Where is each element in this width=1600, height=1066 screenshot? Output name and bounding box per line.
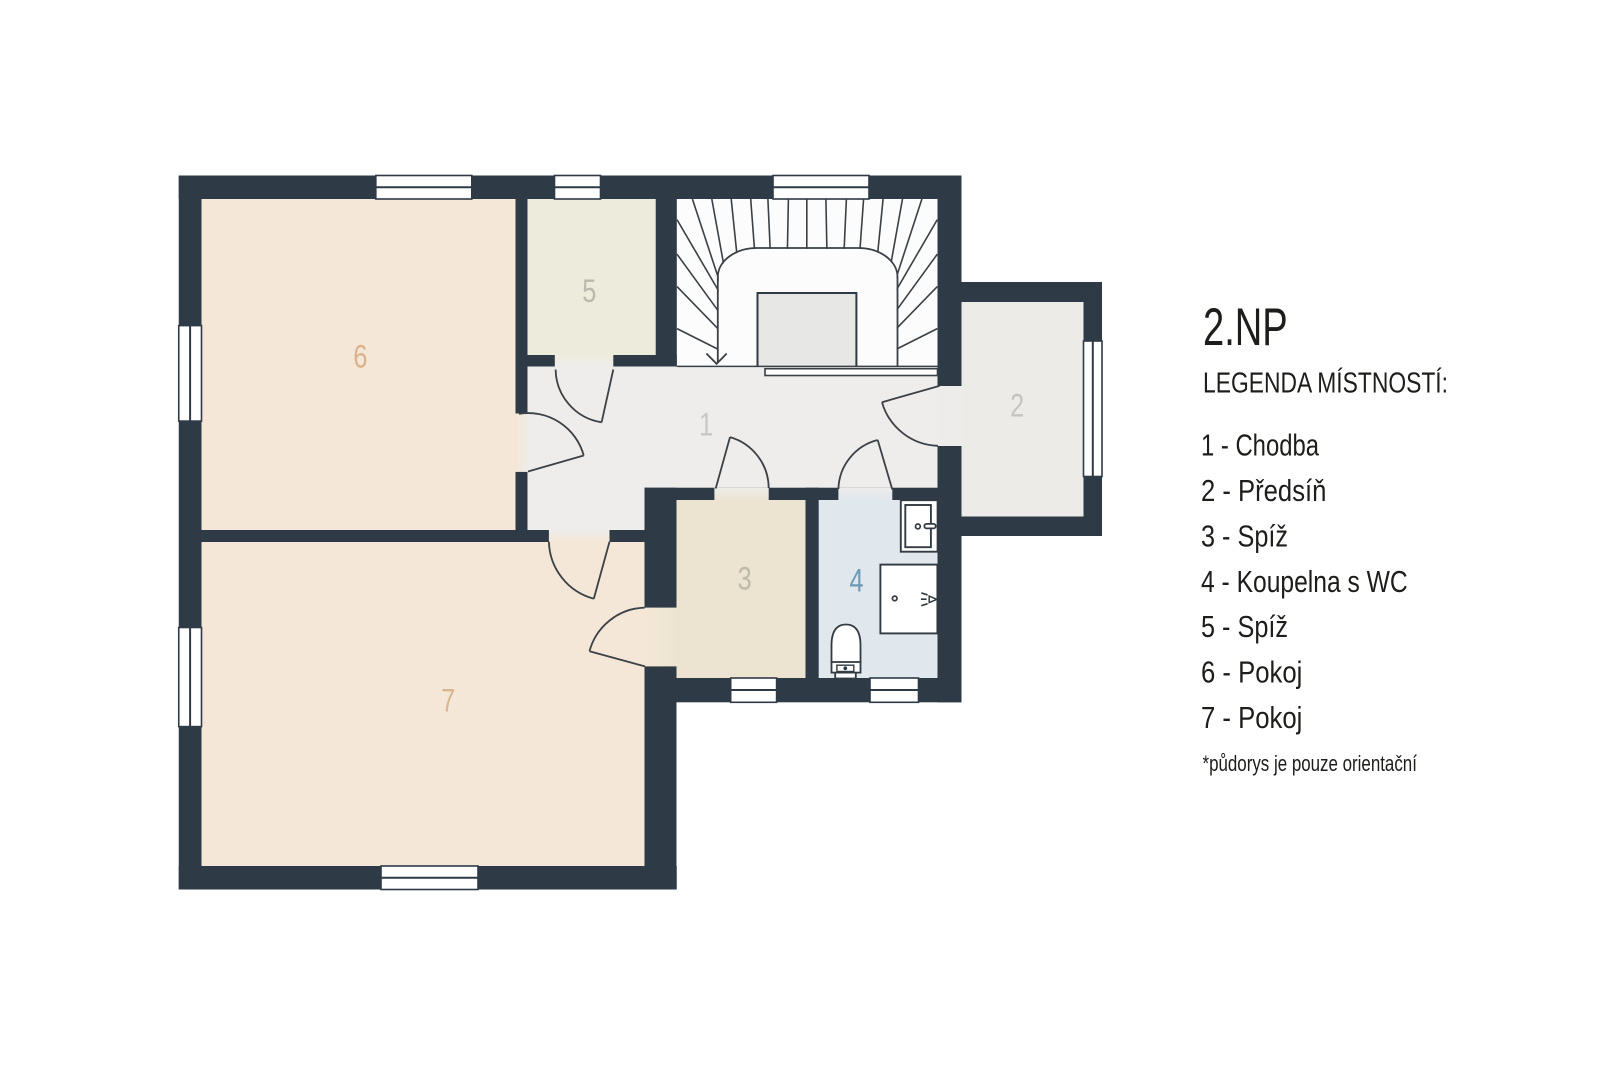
svg-text:5 - Spíž: 5 - Spíž — [1201, 610, 1288, 644]
svg-text:2 - Předsíň: 2 - Předsíň — [1201, 474, 1326, 508]
svg-text:*půdorys je pouze orientační: *půdorys je pouze orientační — [1203, 751, 1418, 776]
svg-text:7: 7 — [441, 684, 455, 720]
svg-text:3: 3 — [738, 562, 752, 598]
svg-text:4: 4 — [849, 564, 863, 600]
svg-text:LEGENDA MÍSTNOSTÍ:: LEGENDA MÍSTNOSTÍ: — [1203, 366, 1448, 399]
svg-text:2: 2 — [1010, 389, 1024, 425]
svg-text:5: 5 — [582, 274, 596, 310]
svg-text:4 - Koupelna s WC: 4 - Koupelna s WC — [1201, 565, 1408, 599]
svg-text:3 - Spíž: 3 - Spíž — [1201, 519, 1288, 553]
svg-text:1 - Chodba: 1 - Chodba — [1201, 428, 1319, 462]
svg-text:6 - Pokoj: 6 - Pokoj — [1201, 656, 1302, 690]
svg-text:1: 1 — [699, 408, 713, 444]
svg-text:6: 6 — [353, 340, 367, 376]
svg-text:7 - Pokoj: 7 - Pokoj — [1201, 701, 1302, 735]
svg-text:2.NP: 2.NP — [1203, 298, 1288, 357]
